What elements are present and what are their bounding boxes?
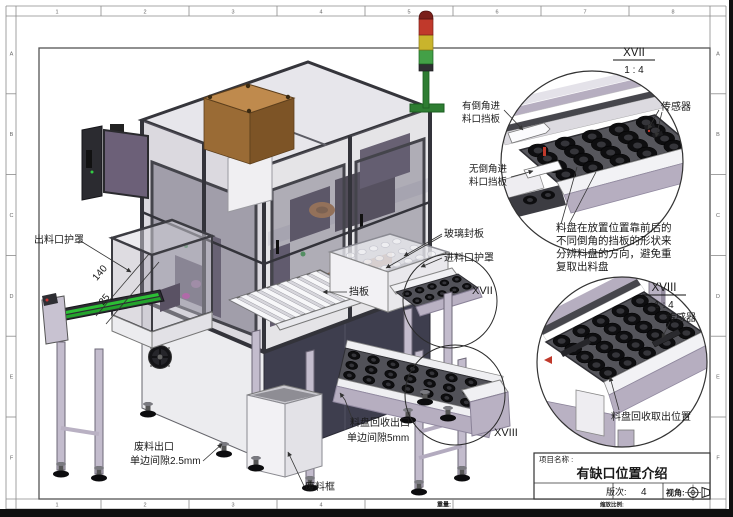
detail-xvii-scale: 1 : 4 [624, 65, 644, 76]
revision-label: 版次: [606, 486, 627, 497]
zone-label: 7 [583, 10, 586, 16]
zone-label: E [716, 375, 720, 381]
view-angle-label: 视角: [666, 488, 685, 498]
inlet-cover-label: 进料口护罩 [444, 251, 494, 264]
callout-xvii-label: XVII [472, 285, 493, 297]
scrap-outlet-line2: 单边间隙2.5mm [130, 454, 201, 467]
callout-xviii-label: XVIII [494, 427, 518, 439]
zone-label: 3 [231, 503, 234, 509]
note-line2: 不同倒角的挡板的形状来 [556, 234, 672, 247]
tray-recycle-outlet-line1: 料盘回收出口 [350, 416, 410, 429]
zone-label: 4 [319, 503, 322, 509]
baffle-label: 挡板 [349, 285, 369, 298]
sensor-label-xviii: 传感器 [666, 311, 696, 324]
zone-label: D [716, 294, 720, 300]
zone-label: 1 [55, 503, 58, 509]
zone-label: 2 [143, 503, 146, 509]
zone-label: B [716, 132, 720, 138]
note-line1: 料盘在放置位置靠前后的 [556, 221, 672, 234]
page-edge-bottom [0, 509, 733, 517]
zone-label: 3 [231, 10, 234, 16]
zone-label: 1 [55, 10, 58, 16]
cooling-fan-icon [149, 346, 172, 369]
zone-label: E [10, 375, 14, 381]
plain-baffle-label-line1: 无倒角进 [469, 163, 508, 175]
revision-value: 4 [641, 487, 647, 498]
tray-recycle-outlet-line2: 单边间隙5mm [347, 431, 409, 444]
project-name-label: 项目名称 : [539, 454, 573, 464]
zone-label: A [10, 51, 14, 57]
plain-baffle-label-line2: 料口挡板 [469, 176, 508, 188]
detail-xvii-id: XVII [623, 47, 645, 59]
detail-xviii-scale: 1 : 4 [654, 300, 674, 311]
sensor-label-xvii: 传感器 [661, 100, 691, 113]
zone-label: 8 [671, 10, 674, 16]
detail-xviii-id: XVIII [652, 282, 677, 294]
door-handle-icon [276, 240, 279, 254]
zone-label: 4 [319, 10, 322, 16]
scale-field-label: 缩放比例: [600, 501, 624, 509]
zone-label: C [10, 213, 14, 219]
scrap-outlet-line1: 废料出口 [134, 440, 174, 453]
note-line4: 复取出料盘 [556, 260, 609, 273]
page-edge-right [729, 0, 733, 517]
weight-field-label: 重量: [437, 501, 451, 509]
zone-label: B [10, 132, 14, 138]
zone-label: 6 [495, 10, 498, 16]
zone-label: C [716, 213, 720, 219]
pickup-position-label: 料盘回收取出位置 [611, 410, 691, 423]
zone-label: D [10, 294, 14, 300]
control-panel-monitor [82, 124, 148, 200]
engineering-drawing-sheet: 123456781234ABCDEFABCDEF [0, 0, 733, 517]
note-line3: 分辨料盘的方向，避免重 [556, 247, 672, 260]
scrap-bin-label: 废料框 [305, 480, 335, 493]
zone-label: A [716, 51, 720, 57]
outlet-cover-label: 出料口护罩 [34, 233, 84, 246]
project-name-value: 有缺口位置介绍 [576, 466, 667, 481]
chamfered-baffle-label-line2: 料口挡板 [462, 113, 501, 125]
glass-panel-label: 玻璃封板 [444, 227, 484, 240]
chamfered-baffle-label-line1: 有倒角进 [462, 100, 501, 112]
zone-label: 5 [407, 10, 410, 16]
outlet-cover-enclosure [112, 220, 212, 348]
zone-label: 2 [143, 10, 146, 16]
